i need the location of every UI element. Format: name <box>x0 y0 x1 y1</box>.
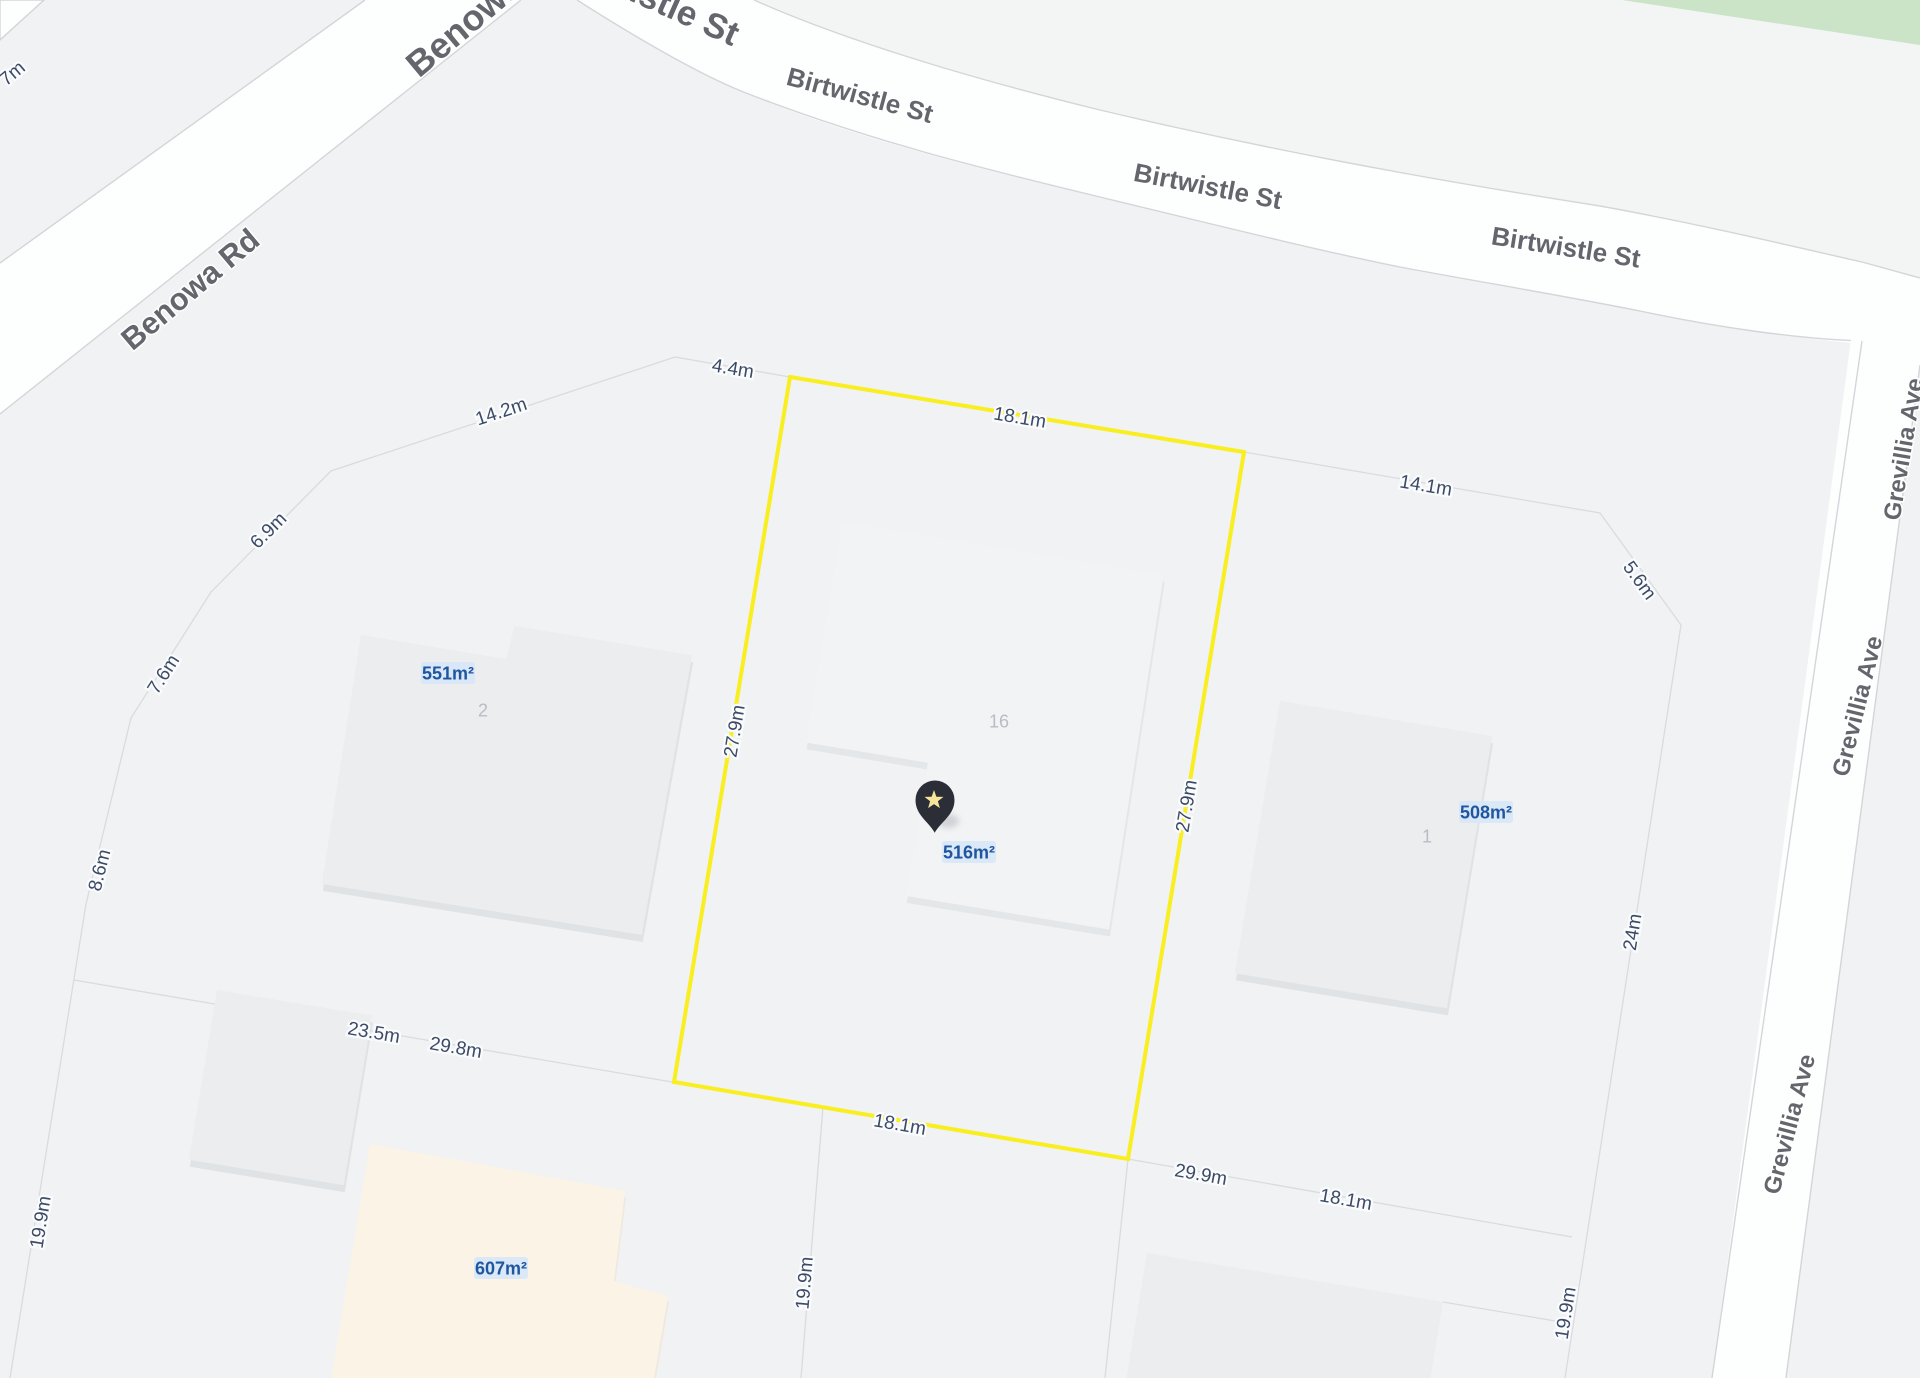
svg-text:16: 16 <box>989 711 1009 731</box>
svg-text:551m²: 551m² <box>422 663 474 683</box>
svg-text:1: 1 <box>1422 826 1432 846</box>
svg-text:607m²: 607m² <box>475 1258 527 1278</box>
svg-text:516m²: 516m² <box>943 842 995 862</box>
svg-text:508m²: 508m² <box>1460 802 1512 822</box>
svg-text:2: 2 <box>478 700 488 720</box>
